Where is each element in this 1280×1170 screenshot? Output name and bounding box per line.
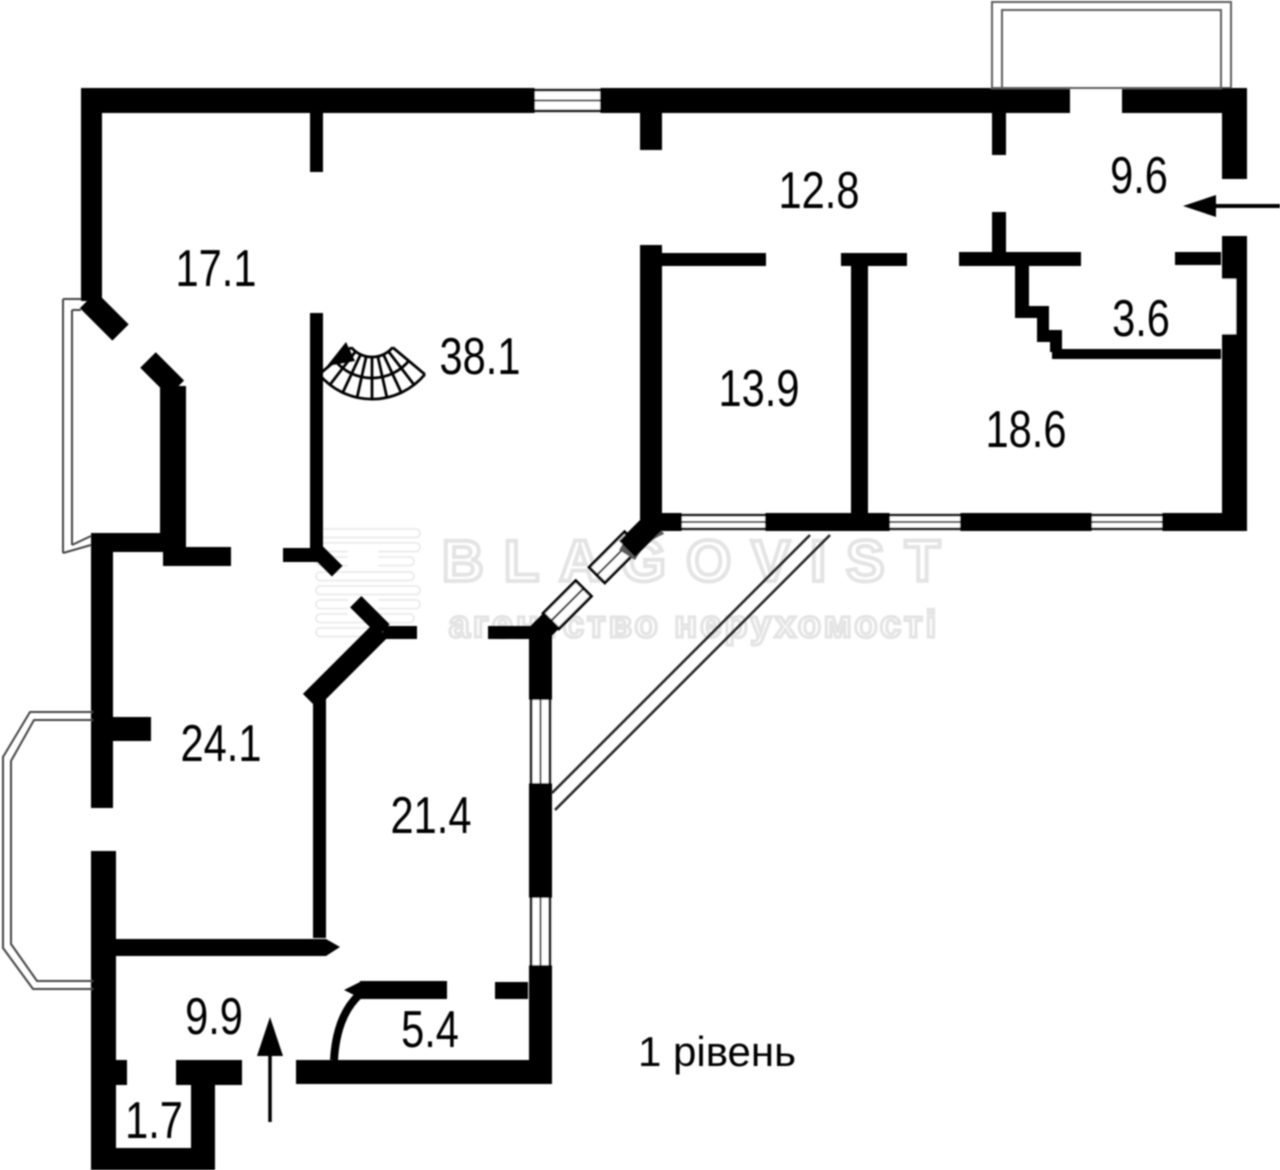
svg-text:13.9: 13.9 [719, 359, 800, 418]
svg-text:18.6: 18.6 [986, 400, 1067, 459]
svg-text:9.9: 9.9 [185, 987, 243, 1046]
svg-text:BLAGOVIST: BLAGOVIST [442, 529, 960, 594]
svg-text:5.4: 5.4 [401, 1000, 459, 1059]
svg-text:17.1: 17.1 [176, 239, 257, 298]
svg-text:1 рівень: 1 рівень [638, 1028, 796, 1075]
svg-text:1.7: 1.7 [125, 1091, 183, 1150]
svg-text:агентство нерухомості: агентство нерухомості [449, 604, 939, 646]
svg-text:38.1: 38.1 [440, 327, 521, 386]
svg-text:3.6: 3.6 [1112, 289, 1170, 348]
svg-text:12.8: 12.8 [779, 161, 860, 220]
svg-text:9.6: 9.6 [1110, 146, 1168, 205]
svg-text:21.4: 21.4 [391, 786, 472, 845]
svg-text:24.1: 24.1 [181, 714, 262, 773]
